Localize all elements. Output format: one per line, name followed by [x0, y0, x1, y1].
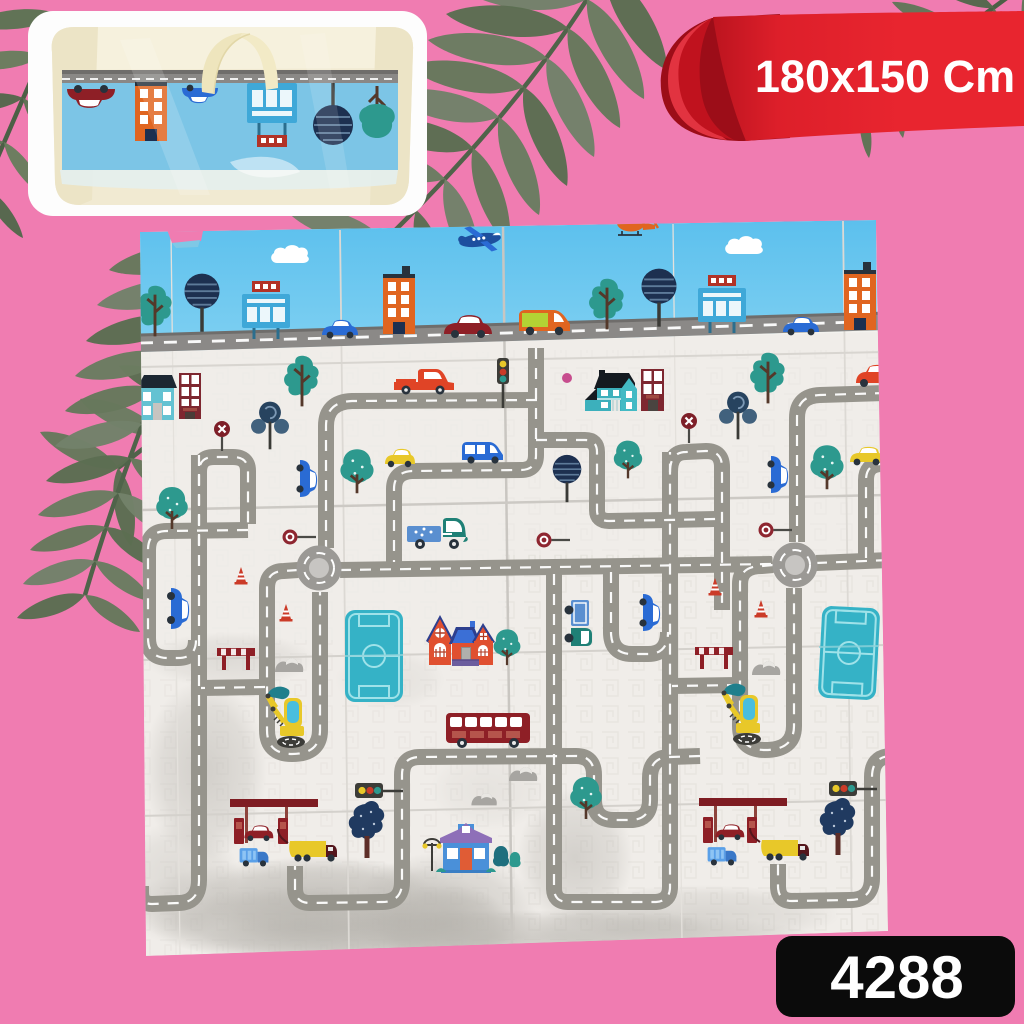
svg-text:180x150 Cm: 180x150 Cm — [755, 51, 1015, 102]
svg-text:4288: 4288 — [830, 944, 963, 1011]
